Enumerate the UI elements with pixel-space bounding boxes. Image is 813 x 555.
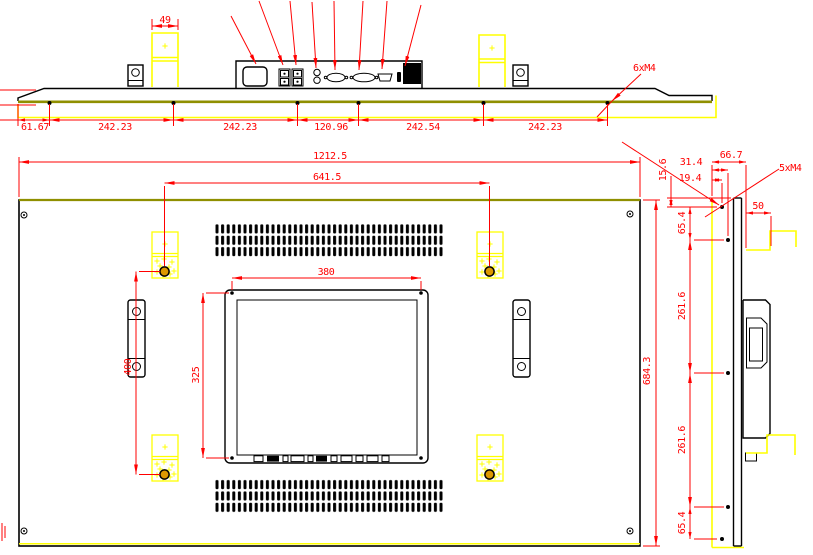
technical-drawing-page: 49 61.67 242.23 2 xyxy=(0,0,813,555)
dim-text: 19.4 xyxy=(679,173,702,184)
dim-text: 242.54 xyxy=(406,122,440,133)
dim-hole-chain: 61.67 242.23 242.23 120.96 242.54 242.23 xyxy=(0,90,608,133)
clamp-bracket xyxy=(152,33,178,87)
dim-text: 65.4 xyxy=(677,211,688,234)
dim-text: 50 xyxy=(752,201,764,212)
dim-overall-height: 684.3 xyxy=(642,200,660,546)
dim-bracket-width: 49 xyxy=(152,15,178,30)
top-profile-view: 49 61.67 242.23 2 xyxy=(0,1,716,133)
dim-text: 66.7 xyxy=(720,150,743,161)
io-connectors xyxy=(243,63,421,86)
db9-connector xyxy=(324,73,347,82)
dim-text: 15.6 xyxy=(658,158,669,181)
dim-text: 684.3 xyxy=(642,357,653,385)
terminal-block-connector xyxy=(279,69,290,86)
db15-connector xyxy=(350,73,378,82)
dim-text: 242.23 xyxy=(223,122,257,133)
dim-text: 65.4 xyxy=(677,511,688,534)
top-edge-profile xyxy=(18,89,712,102)
callout-text: 5xM4 xyxy=(779,163,802,174)
dim-text: 120.96 xyxy=(314,122,348,133)
rear-housing xyxy=(743,300,770,461)
power-switch xyxy=(403,63,421,84)
gasket-strip xyxy=(18,96,716,118)
panel-dimension-drawing: 49 61.67 242.23 2 xyxy=(0,0,813,555)
audio-jack-connector xyxy=(314,69,320,83)
dim-text: 325 xyxy=(191,366,202,383)
dim-hole-rows: 65.4 261.6 261.6 65.4 xyxy=(667,198,731,539)
dim-text: 242.23 xyxy=(98,122,132,133)
housing-foot xyxy=(746,453,757,461)
dim-text: 380 xyxy=(318,267,335,278)
dim-text: 261.6 xyxy=(677,292,688,320)
dim-text: 261.6 xyxy=(677,426,688,454)
dim-text: 400 xyxy=(123,358,134,375)
thread-callout-6xM4: 6xM4 xyxy=(597,63,656,117)
margin-marks xyxy=(2,523,5,541)
side-panel-body xyxy=(734,198,742,546)
mounting-bracket xyxy=(513,65,528,86)
terminal-block-connector xyxy=(292,69,303,86)
clamp-bracket xyxy=(479,35,505,87)
dim-text: 61.67 xyxy=(21,122,49,133)
connector-leader-arrows xyxy=(231,1,421,70)
wall-hook-bracket xyxy=(746,231,796,455)
dim-text: 31.4 xyxy=(680,157,703,168)
callout-text: 6xM4 xyxy=(633,63,656,74)
vent-grille xyxy=(215,479,443,513)
led-indicator xyxy=(397,72,401,82)
hdmi-connector xyxy=(378,74,392,81)
mounting-bracket xyxy=(128,65,143,86)
dim-text: 49 xyxy=(159,15,171,26)
dim-text: 242.23 xyxy=(528,122,562,133)
power-inlet-connector xyxy=(243,67,267,86)
side-profile-view: 65.4 261.6 261.6 65.4 15.6 19.4 31.4 xyxy=(622,142,802,548)
dim-text: 1212.5 xyxy=(313,151,347,162)
dim-bracket-depth: 50 xyxy=(746,201,771,246)
vent-grille xyxy=(215,224,443,258)
dim-text: 641.5 xyxy=(313,172,341,183)
front-view: 1212.5 641.5 380 325 400 xyxy=(2,151,660,546)
